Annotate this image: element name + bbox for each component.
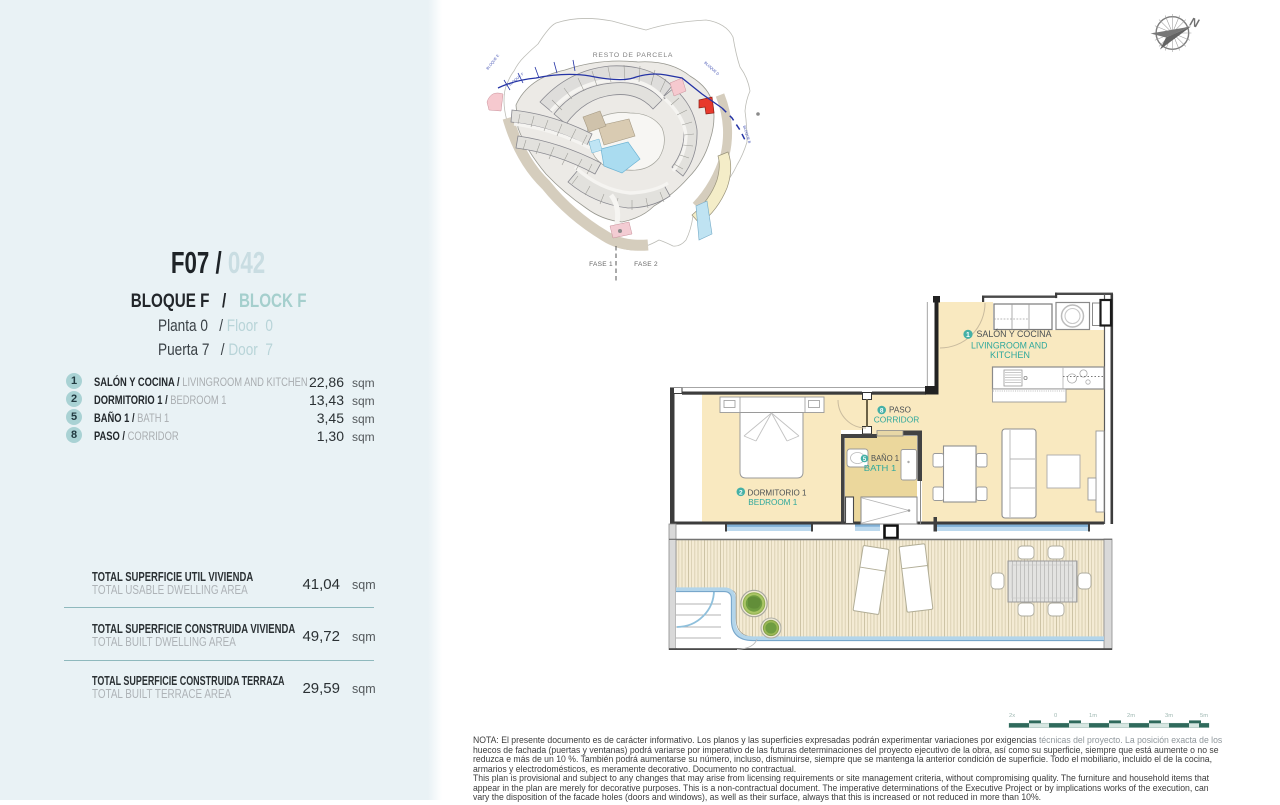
svg-text:BLOQUE E: BLOQUE E xyxy=(486,53,501,70)
svg-text:DORMITORIO 1: DORMITORIO 1 xyxy=(748,488,807,498)
svg-text:BEDROOM 1: BEDROOM 1 xyxy=(748,497,797,507)
svg-text:1: 1 xyxy=(966,332,970,339)
svg-text:FASE 1: FASE 1 xyxy=(589,261,613,268)
svg-text:5m: 5m xyxy=(1200,713,1208,719)
svg-text:CORRIDOR: CORRIDOR xyxy=(874,416,920,425)
svg-text:3m: 3m xyxy=(1165,713,1173,719)
svg-text:N: N xyxy=(1188,15,1201,31)
svg-text:2x: 2x xyxy=(1009,713,1015,719)
svg-text:2: 2 xyxy=(739,489,743,496)
svg-text:PASO: PASO xyxy=(889,406,911,415)
svg-text:1m: 1m xyxy=(1089,713,1097,719)
svg-text:BAÑO 1: BAÑO 1 xyxy=(871,454,899,463)
svg-text:RESTO DE PARCELA: RESTO DE PARCELA xyxy=(593,52,674,59)
svg-text:FASE 2: FASE 2 xyxy=(634,261,658,268)
svg-text:8: 8 xyxy=(880,408,884,415)
svg-text:BATH 1: BATH 1 xyxy=(864,464,897,473)
svg-text:SALÓN Y COCINA: SALÓN Y COCINA xyxy=(977,329,1052,339)
svg-text:2m: 2m xyxy=(1127,713,1135,719)
svg-text:KITCHEN: KITCHEN xyxy=(990,350,1030,360)
svg-text:0: 0 xyxy=(1054,713,1057,719)
